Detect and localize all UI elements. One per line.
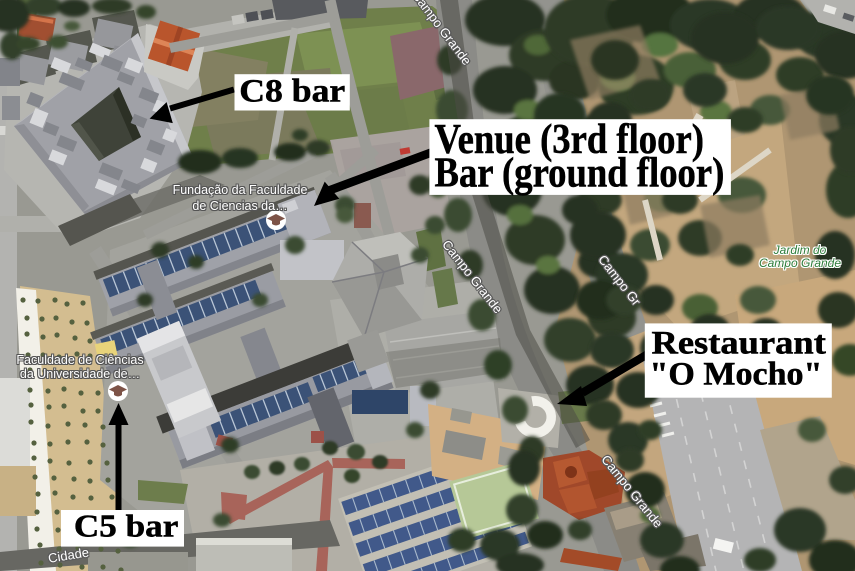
svg-text:Bar (ground floor): Bar (ground floor) bbox=[435, 149, 725, 196]
svg-text:C8 bar: C8 bar bbox=[239, 73, 345, 109]
svg-text:"O Mocho": "O Mocho" bbox=[650, 356, 823, 393]
svg-text:C5 bar: C5 bar bbox=[74, 509, 179, 544]
